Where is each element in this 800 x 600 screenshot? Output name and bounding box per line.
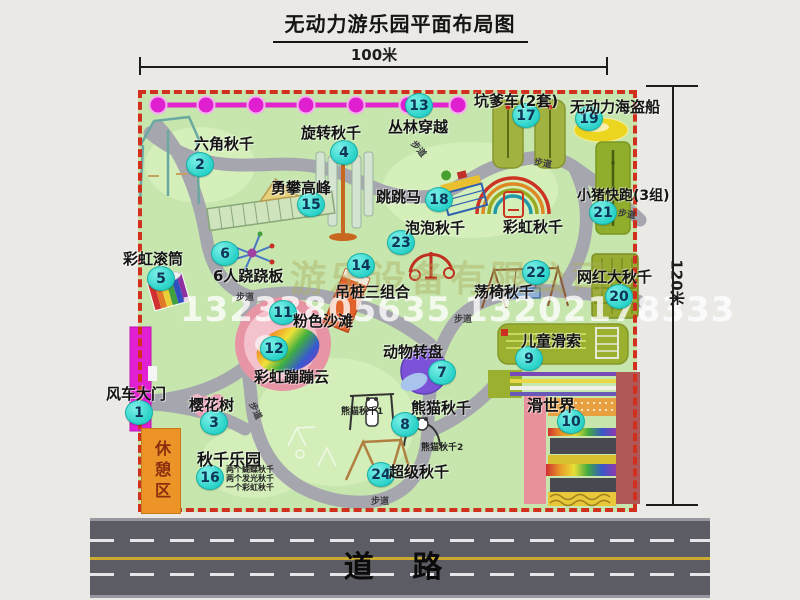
kids-zipline-icon (498, 324, 628, 364)
height-dimension-tick-bottom (646, 504, 698, 506)
height-dimension-tick-top (646, 85, 698, 87)
park-plan-page: 无动力游乐园平面布局图 100米 120米 (0, 0, 800, 600)
six-seesaw-icon (230, 232, 275, 273)
watermark-phone: 13233805635 13202178333 (180, 290, 735, 330)
piggy-run-icon (596, 142, 630, 234)
rest-area: 休憩区 (141, 428, 181, 514)
page-title-text: 无动力游乐园平面布局图 (273, 8, 528, 43)
pirate-ship-icon (574, 118, 628, 142)
slide-world (488, 370, 640, 506)
road: 道 路 (90, 518, 710, 598)
animal-turntable-icon (398, 348, 447, 395)
road-label: 道 路 (90, 542, 710, 586)
rest-area-label: 休憩区 (149, 440, 173, 503)
windmill-gate (130, 327, 157, 431)
width-dimension-label: 100米 (140, 44, 608, 65)
width-dimension-line (140, 66, 608, 68)
zipline-course (150, 97, 467, 114)
height-dimension-label: 120米 (667, 258, 688, 308)
page-title: 无动力游乐园平面布局图 (0, 8, 800, 43)
